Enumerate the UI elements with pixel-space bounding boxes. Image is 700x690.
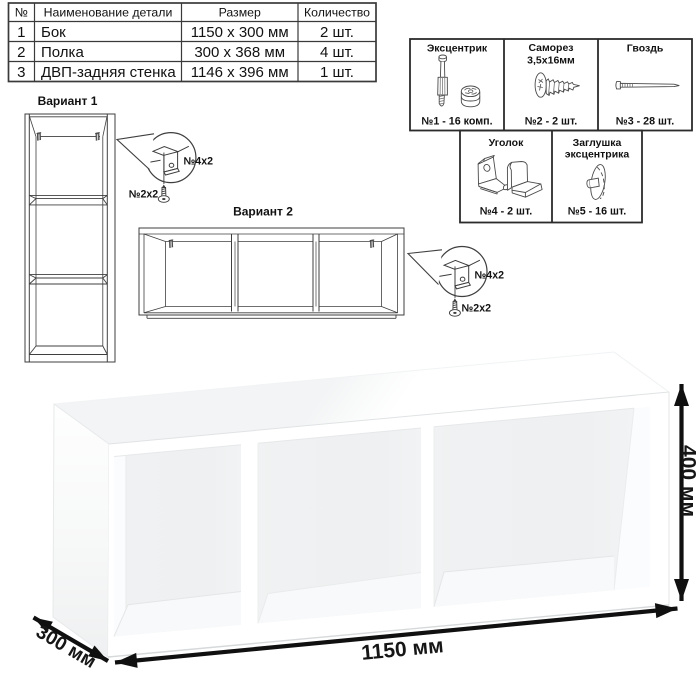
svg-text:ДВП-задняя стенка: ДВП-задняя стенка xyxy=(41,64,176,81)
svg-text:№4х2: №4х2 xyxy=(475,269,505,281)
svg-text:1: 1 xyxy=(17,24,25,41)
svg-text:Полка: Полка xyxy=(41,44,84,61)
svg-text:1146 х 396 мм: 1146 х 396 мм xyxy=(191,64,289,81)
svg-text:Гвоздь: Гвоздь xyxy=(627,43,664,55)
svg-text:Заглушка: Заглушка xyxy=(573,137,622,149)
svg-text:Эксцентрик: Эксцентрик xyxy=(427,43,488,55)
svg-text:№5 - 16 шт.: №5 - 16 шт. xyxy=(568,206,626,218)
svg-text:2: 2 xyxy=(17,44,25,61)
svg-text:300 х 368 мм: 300 х 368 мм xyxy=(194,44,285,61)
svg-text:№4 - 2 шт.: №4 - 2 шт. xyxy=(480,206,532,218)
svg-text:Количество: Количество xyxy=(304,6,370,20)
svg-text:№1 - 16 комп.: №1 - 16 комп. xyxy=(421,116,492,128)
svg-text:Вариант 2: Вариант 2 xyxy=(233,205,293,219)
svg-text:1 шт.: 1 шт. xyxy=(320,64,354,81)
svg-text:Вариант 1: Вариант 1 xyxy=(38,94,98,108)
svg-text:№2х2: №2х2 xyxy=(129,188,159,200)
svg-text:3,5х16мм: 3,5х16мм xyxy=(527,55,575,67)
svg-text:2 шт.: 2 шт. xyxy=(320,24,354,41)
svg-text:эксцентрика: эксцентрика xyxy=(565,149,630,161)
svg-text:4 шт.: 4 шт. xyxy=(320,44,354,61)
svg-text:№: № xyxy=(15,6,28,20)
svg-text:№4х2: №4х2 xyxy=(184,156,214,168)
svg-text:№2 - 2 шт.: №2 - 2 шт. xyxy=(525,116,577,128)
svg-text:№3 - 28 шт.: №3 - 28 шт. xyxy=(616,116,674,128)
svg-text:3: 3 xyxy=(17,64,25,81)
svg-text:Саморез: Саморез xyxy=(528,42,573,54)
svg-text:Размер: Размер xyxy=(219,6,261,20)
svg-text:Бок: Бок xyxy=(41,24,66,41)
svg-text:№2х2: №2х2 xyxy=(462,302,492,314)
svg-text:Уголок: Уголок xyxy=(489,137,524,149)
svg-text:Наименование детали: Наименование детали xyxy=(44,6,173,20)
svg-text:400 мм: 400 мм xyxy=(677,445,700,517)
svg-text:1150 х 300 мм: 1150 х 300 мм xyxy=(191,24,289,41)
